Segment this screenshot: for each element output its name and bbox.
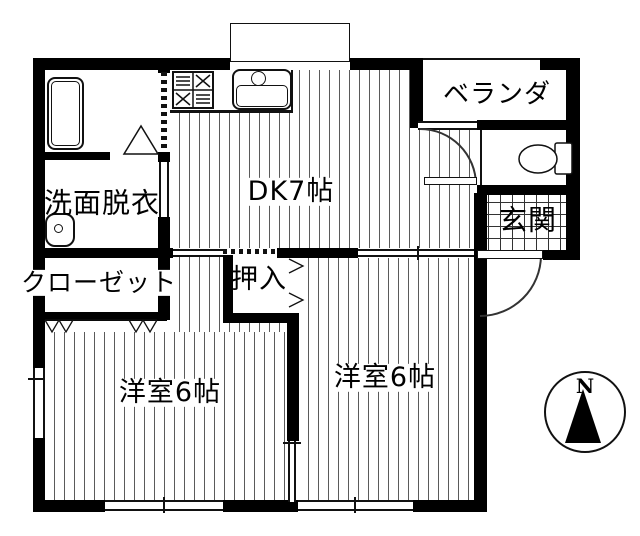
floor-plan: DK7帖 ベランダ 玄関 洗面脱衣 クローゼット 押入 洋室6帖 洋室6帖 N — [0, 0, 640, 536]
kitchen-sink-faucet — [251, 71, 266, 86]
genkan-bottom-wall — [543, 250, 580, 260]
bay-window — [230, 23, 350, 62]
bath-door-triangle-icon — [118, 120, 164, 160]
window-tick — [163, 497, 165, 513]
toilet-icon — [515, 140, 575, 180]
room-label-oshiire: 押入 — [229, 266, 289, 294]
door-tick — [283, 442, 301, 444]
room-label-dk: DK7帖 — [246, 178, 337, 206]
outer-wall-bottom-a — [33, 500, 105, 512]
veranda-top-rail — [418, 58, 540, 60]
toilet-left-wall — [480, 130, 482, 185]
dk-bedroom2-sliding-door — [358, 249, 474, 257]
bedroom1-bedroom2-sliding-door — [288, 441, 296, 502]
kitchen-sink-basin — [236, 85, 288, 107]
compass-needle-icon — [546, 373, 624, 451]
entry-door-swing-arc — [480, 255, 542, 317]
door-tick — [417, 246, 419, 260]
stove-icon — [172, 71, 214, 109]
room-label-closet: クローゼット — [19, 270, 179, 296]
washroom-bottom-wall — [33, 248, 173, 258]
dk-veranda-wall — [410, 58, 423, 128]
toilet-bottom-wall — [477, 185, 572, 195]
outer-wall-top-mid — [350, 58, 418, 70]
outer-wall-top-left — [33, 58, 230, 70]
compass: N — [544, 371, 626, 453]
bathtub-inner — [51, 81, 80, 146]
entry-door-leaf — [477, 250, 543, 259]
bedroom1-floor — [45, 332, 287, 500]
washbasin-drain — [54, 224, 63, 233]
room-label-veranda: ベランダ — [441, 81, 553, 108]
window-tick — [354, 497, 356, 513]
bath-washroom-wall — [33, 152, 110, 160]
bedroom-divider-wall — [287, 313, 299, 441]
oshiire-door-chevrons-icon — [288, 255, 308, 313]
oshiire-bottom-wall — [223, 313, 297, 323]
veranda-bottom-wall — [477, 120, 566, 130]
closet-folding-door-icon — [40, 316, 162, 338]
room-label-genkan: 玄関 — [497, 205, 559, 234]
dk-bedroom1-sliding-door — [173, 249, 223, 257]
outer-wall-bottom-b — [223, 500, 298, 512]
window-tick — [28, 378, 44, 380]
room-label-bedroom2: 洋室6帖 — [332, 364, 438, 392]
room-label-bedroom1: 洋室6帖 — [117, 379, 223, 407]
room-label-washroom: 洗面脱衣 — [42, 188, 162, 217]
dk-door-leaf — [424, 177, 477, 185]
sanitary-right-wall-top — [158, 58, 170, 73]
outer-wall-right-lower — [474, 193, 487, 512]
oshiire-top-dashed-line — [223, 249, 277, 254]
